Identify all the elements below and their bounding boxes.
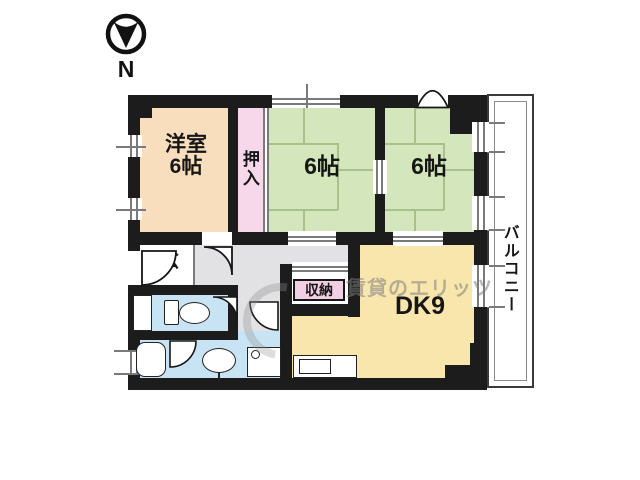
- floor-plan: N バルコニー: [0, 0, 640, 480]
- entrance-door-swing-icon: [142, 251, 176, 285]
- agency-watermark: 賃貸のエリッツ: [346, 272, 526, 301]
- door-swing-icon: [204, 247, 232, 275]
- door-swings: [0, 0, 640, 480]
- top-door-arc-icon: [417, 91, 448, 108]
- toilet-door-swing-icon: [213, 297, 237, 321]
- bathroom-door-swing-icon: [170, 341, 196, 367]
